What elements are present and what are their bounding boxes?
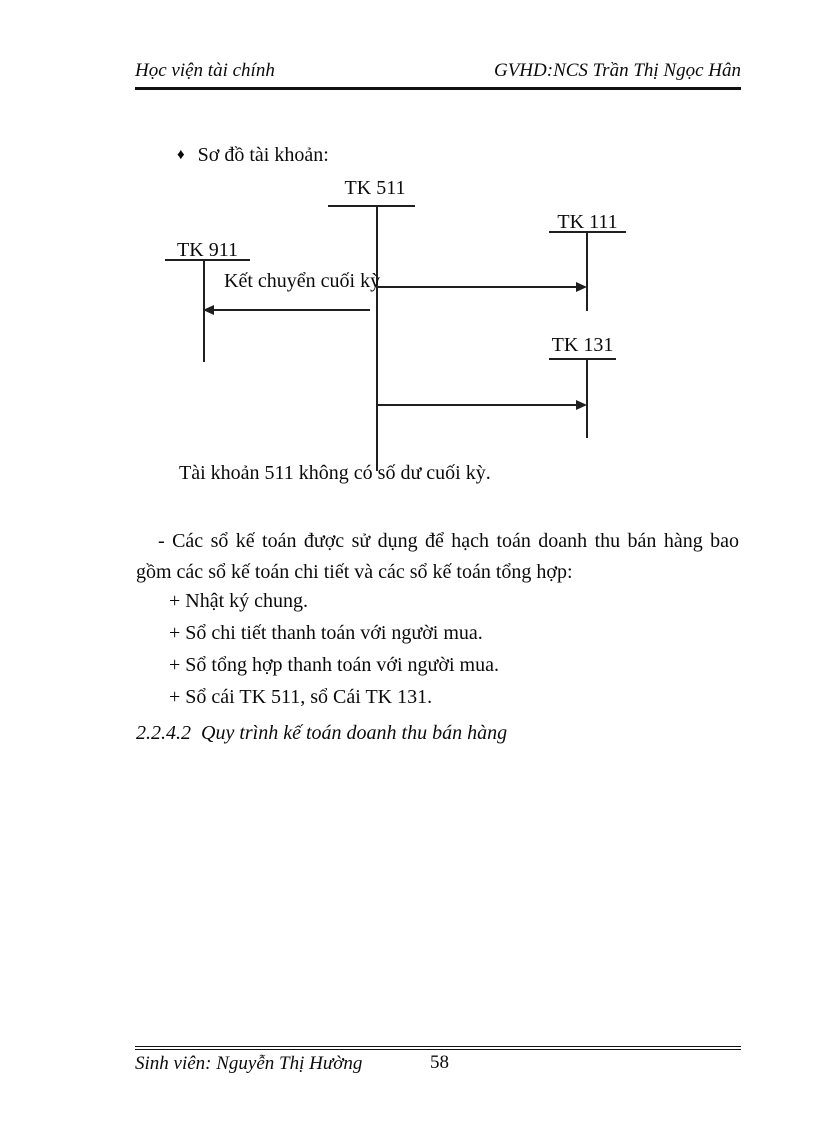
flow-arrow-511-to-111-head-icon (576, 282, 587, 292)
document-page: Học viện tài chính GVHD:NCS Trần Thị Ngọ… (0, 0, 816, 1123)
flow-arrow-511-to-111-line (377, 286, 577, 288)
t-account-911-top-line (165, 259, 250, 261)
header-institution: Học viện tài chính (135, 60, 275, 82)
flow-arrow-label: Kết chuyển cuối kỳ (224, 270, 380, 293)
t-account-131-top-line (549, 358, 616, 360)
list-item: + Nhật ký chung. (169, 590, 308, 613)
section-heading-2242: 2.2.4.2 Quy trình kế toán doanh thu bán … (136, 722, 507, 745)
list-item: + Sổ chi tiết thanh toán với người mua. (169, 622, 483, 645)
t-account-511-stem-line (376, 205, 378, 471)
account-label-tk511: TK 511 (330, 177, 420, 200)
page-number: 58 (430, 1052, 449, 1074)
page-header: Học viện tài chính GVHD:NCS Trần Thị Ngọ… (135, 60, 741, 90)
page-footer: Sinh viên: Nguyễn Thị Hường 58 (135, 1046, 741, 1075)
account-label-tk131: TK 131 (549, 334, 616, 357)
diagram-caption-text: Sơ đồ tài khoản: (198, 144, 329, 167)
ledger-books-paragraph: - Các sổ kế toán được sử dụng để hạch to… (136, 526, 739, 588)
flow-arrow-511-to-911-line (213, 309, 370, 311)
diagram-note: Tài khoản 511 không có số dư cuối kỳ. (179, 462, 491, 485)
t-account-131-stem-line (586, 358, 588, 438)
t-account-111-stem-line (586, 231, 588, 311)
flow-arrow-511-to-131-head-icon (576, 400, 587, 410)
header-advisor: GVHD:NCS Trần Thị Ngọc Hân (494, 60, 741, 82)
diamond-bullet-icon: ♦ (177, 148, 185, 163)
t-account-511-top-line (328, 205, 415, 207)
flow-arrow-511-to-911-head-icon (203, 305, 214, 315)
diagram-caption-line: ♦ Sơ đồ tài khoản: (177, 144, 329, 167)
flow-arrow-511-to-131-line (377, 404, 577, 406)
footer-student-name: Sinh viên: Nguyễn Thị Hường (135, 1053, 362, 1074)
list-item: + Sổ cái TK 511, sổ Cái TK 131. (169, 686, 432, 709)
list-item: + Sổ tổng hợp thanh toán với người mua. (169, 654, 499, 677)
